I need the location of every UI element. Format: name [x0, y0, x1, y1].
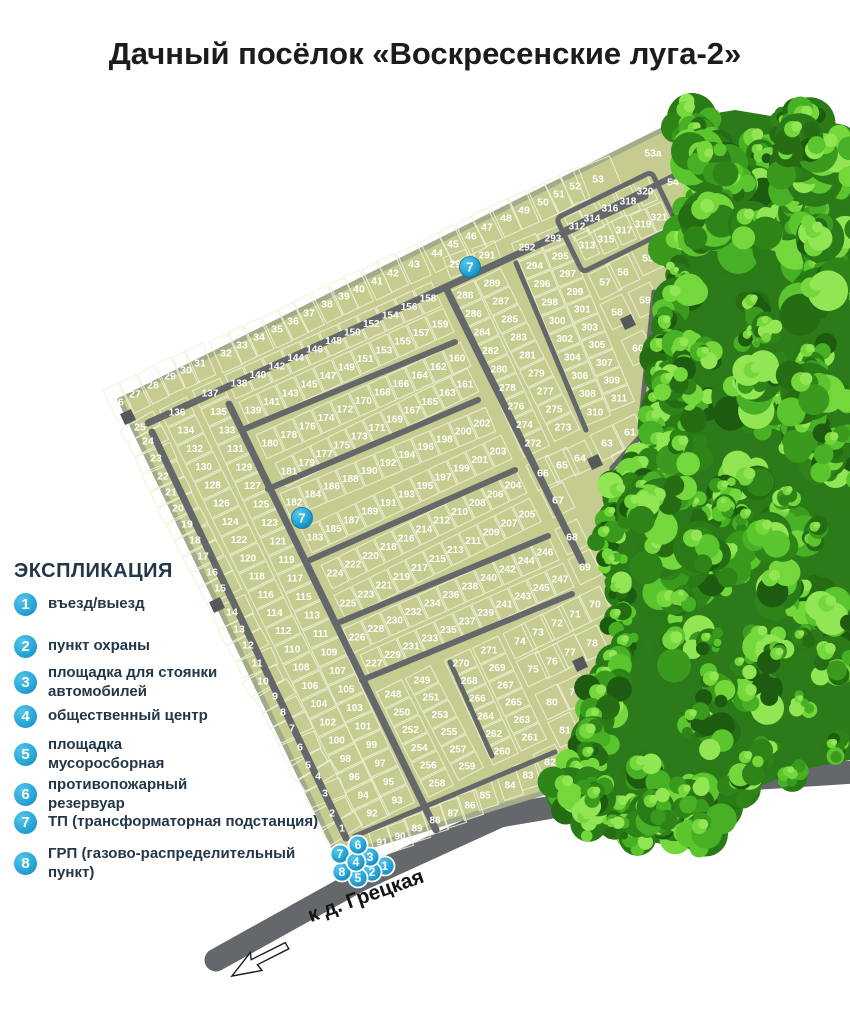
plot-label: 264 — [477, 711, 494, 722]
plot-label: 294 — [526, 261, 543, 272]
tree-leaf — [808, 136, 826, 154]
tree-leaf — [713, 638, 721, 646]
plot-label: 148 — [325, 336, 342, 347]
plot-label: 94 — [358, 790, 370, 801]
plot-label: 116 — [258, 590, 275, 601]
plot-label: 303 — [581, 322, 598, 333]
tree-leaf — [615, 582, 622, 589]
tree-leaf — [620, 832, 628, 840]
plot-label: 239 — [477, 608, 494, 619]
plot-label: 237 — [459, 617, 476, 628]
tree-leaf — [678, 436, 688, 446]
plot-label: 194 — [398, 450, 415, 461]
plot-label: 105 — [338, 685, 355, 696]
plot-label: 222 — [344, 560, 361, 571]
cluster-marker-label: 4 — [353, 855, 360, 869]
plot-label: 223 — [358, 590, 375, 601]
plot-label: 174 — [318, 413, 335, 424]
plot-label: 125 — [253, 500, 270, 511]
plot-label: 126 — [213, 499, 230, 510]
plot-label: 6 — [297, 742, 303, 754]
tree-leaf — [650, 809, 666, 825]
plot-label: 208 — [469, 498, 486, 509]
plot-label: 235 — [440, 625, 457, 636]
plot-label: 247 — [552, 575, 569, 586]
plot-label: 249 — [414, 676, 431, 687]
plot-label: 310 — [587, 408, 604, 419]
tree-leaf — [636, 756, 646, 766]
plot-label: 46 — [465, 231, 477, 243]
tree-leaf — [738, 657, 744, 663]
plot-label: 317 — [616, 226, 633, 237]
plot-label: 150 — [344, 328, 361, 339]
plot-label: 2 — [329, 808, 335, 820]
plot-label: 135 — [210, 407, 227, 418]
plot-label: 161 — [457, 380, 474, 391]
plot-label: 21 — [165, 487, 177, 499]
plot-label: 69 — [579, 562, 591, 574]
plot-label: 157 — [413, 328, 430, 339]
plot-label: 98 — [340, 754, 352, 765]
tree-leaf — [691, 719, 703, 731]
legend-label-2: пункт охраны — [48, 637, 150, 656]
plot-label: 122 — [231, 535, 248, 546]
tree-leaf — [676, 452, 700, 476]
plot-label: 240 — [480, 573, 497, 584]
plot-label: 189 — [362, 507, 379, 518]
plot-label: 175 — [333, 440, 350, 451]
tree-leaf — [762, 519, 772, 529]
tree-leaf — [744, 209, 755, 220]
plot-label: 13 — [233, 624, 245, 636]
plot-label: 233 — [421, 633, 438, 644]
tree-leaf — [752, 756, 763, 767]
plot-label: 155 — [394, 337, 411, 348]
plot-label: 43 — [408, 259, 420, 271]
tree-leaf — [680, 406, 707, 433]
plot-label: 130 — [195, 462, 212, 473]
plot-label: 214 — [416, 525, 433, 536]
plot-label: 279 — [528, 369, 545, 380]
plot-label: 67 — [552, 495, 564, 507]
plot-label: 304 — [564, 353, 581, 364]
plot-label: 74 — [514, 636, 526, 648]
legend-marker-8: 8 — [14, 852, 37, 875]
tree-leaf — [670, 631, 682, 643]
plot-label: 308 — [579, 389, 596, 400]
legend-item-security: 2 пункт охраны — [14, 635, 150, 658]
plot-label: 318 — [620, 197, 637, 208]
tp-marker-label: 7 — [466, 260, 473, 275]
plot-label: 215 — [429, 554, 446, 565]
tree-leaf — [593, 787, 601, 795]
plot-label: 80 — [546, 697, 558, 709]
tree-leaf — [587, 747, 594, 754]
tree-leaf — [699, 739, 720, 760]
tree-leaf — [718, 568, 738, 588]
plot-label: 41 — [371, 276, 383, 288]
legend-item-tp: 7 ТП (трансформаторная подстанция) — [14, 811, 318, 834]
tree-leaf — [693, 779, 710, 796]
legend-label-4: общественный центр — [48, 707, 208, 726]
plot-label: 245 — [533, 583, 550, 594]
plot-label: 95 — [383, 777, 395, 788]
plot-label: 201 — [471, 455, 488, 466]
plot-label: 34 — [253, 332, 265, 344]
plot-label: 115 — [295, 592, 312, 603]
plot-label: 219 — [393, 572, 410, 583]
tree-leaf — [814, 522, 820, 528]
tree-leaf — [758, 626, 768, 636]
plot-label: 81 — [559, 725, 571, 737]
plot-label: 207 — [501, 518, 518, 529]
plot-label: 153 — [376, 345, 393, 356]
cluster-marker-label: 6 — [355, 838, 362, 852]
plot-label: 140 — [250, 370, 267, 381]
plot-label: 238 — [461, 582, 478, 593]
plot-label: 1 — [339, 823, 345, 835]
plot-label: 4 — [315, 771, 321, 783]
plot-label: 77 — [564, 647, 576, 659]
tree-leaf — [721, 498, 726, 503]
plot-label: 123 — [261, 518, 278, 529]
plot-label: 11 — [251, 658, 262, 670]
plot-label: 293 — [545, 234, 562, 245]
tree-leaf — [744, 751, 752, 759]
tree-leaf — [622, 635, 629, 642]
tree-leaf — [684, 101, 695, 112]
tree-leaf — [679, 591, 684, 596]
tree-leaf — [742, 665, 756, 679]
tree-leaf — [616, 483, 625, 492]
tree-leaf — [722, 480, 729, 487]
plot-label: 252 — [402, 725, 419, 736]
tree-leaf — [812, 222, 823, 233]
plot-label: 295 — [552, 251, 569, 262]
plot-label: 286 — [465, 309, 482, 320]
plot-label: 124 — [222, 517, 239, 528]
plot-label: 306 — [572, 371, 589, 382]
plot-label: 63 — [601, 438, 613, 450]
plot-label: 321 — [651, 213, 668, 224]
plot-label: 44 — [431, 248, 443, 260]
cluster-marker-label: 5 — [355, 871, 362, 885]
tree-leaf — [698, 819, 708, 829]
plot-label: 48 — [500, 213, 512, 225]
plot-label: 38 — [321, 299, 333, 311]
plot-label: 187 — [343, 515, 360, 526]
plot-label: 265 — [505, 698, 522, 709]
plot-label: 244 — [518, 556, 535, 567]
plot-label: 251 — [423, 693, 440, 704]
plot-label: 258 — [429, 779, 446, 790]
tree-leaf — [631, 495, 640, 504]
tree-leaf — [827, 660, 847, 680]
tree-leaf — [562, 775, 573, 786]
plot-label: 104 — [310, 699, 327, 710]
tree-leaf — [746, 331, 751, 336]
plot-label: 284 — [474, 328, 491, 339]
plot-label: 159 — [432, 320, 449, 331]
tree-leaf — [690, 709, 697, 716]
plot-label: 129 — [236, 463, 253, 474]
plot-label: 83 — [522, 771, 534, 782]
plot-label: 78 — [586, 638, 598, 650]
tree-leaf — [751, 128, 763, 140]
plot-label: 154 — [382, 311, 399, 322]
plot-label: 52 — [569, 181, 581, 193]
tree-leaf — [670, 285, 681, 296]
plot-label: 273 — [555, 423, 572, 434]
plot-label: 18 — [189, 535, 201, 547]
tree-leaf — [744, 509, 751, 516]
tree-leaf — [810, 278, 823, 291]
tree-leaf — [684, 226, 708, 250]
plot-label: 186 — [323, 482, 340, 493]
tree-leaf — [652, 410, 661, 419]
plot-label: 45 — [447, 239, 459, 251]
plot-label: 203 — [490, 447, 507, 458]
plot-label: 28 — [147, 380, 159, 392]
tree-leaf — [694, 554, 712, 572]
plot-label: 26 — [112, 397, 124, 409]
tree-leaf — [603, 526, 610, 533]
plot-label: 319 — [635, 220, 652, 231]
plot-label: 12 — [242, 640, 254, 652]
plot-label: 58 — [611, 307, 623, 319]
legend-label-7: ТП (трансформаторная подстанция) — [48, 813, 318, 832]
plot-label: 144 — [287, 353, 304, 364]
plot-label: 313 — [579, 241, 596, 252]
plot-label: 191 — [380, 498, 397, 509]
tree-leaf — [596, 684, 606, 694]
plot-label: 7 — [289, 723, 295, 735]
tp-marker: 7 — [292, 508, 313, 529]
cluster-marker: 4 — [347, 853, 366, 872]
plot-label: 57 — [599, 277, 611, 289]
plot-label: 160 — [449, 354, 466, 365]
plot-label: 163 — [439, 388, 456, 399]
plot-label: 73 — [532, 627, 544, 639]
plot-label: 173 — [351, 432, 368, 443]
tp-marker-label: 7 — [298, 511, 305, 526]
legend-marker-2: 2 — [14, 635, 37, 658]
plot-label: 259 — [459, 762, 476, 773]
plot-label: 272 — [525, 439, 542, 450]
plot-label: 210 — [451, 507, 468, 518]
plot-label: 248 — [385, 690, 402, 701]
plot-label: 134 — [178, 426, 195, 437]
tree-leaf — [751, 362, 761, 372]
plot-label: 36 — [287, 316, 299, 328]
tree-leaf — [760, 688, 778, 706]
plot-label: 92 — [366, 809, 378, 820]
plot-label: 196 — [417, 442, 434, 453]
plot-label: 99 — [366, 740, 378, 751]
plot-label: 37 — [303, 308, 315, 320]
plot-label: 156 — [401, 302, 418, 313]
plot-label: 90 — [394, 832, 406, 843]
plot-label: 64 — [574, 453, 586, 465]
plot-label: 47 — [481, 222, 493, 234]
plot-label: 10 — [257, 676, 269, 688]
plot-label: 181 — [281, 467, 298, 478]
plot-label: 198 — [436, 434, 453, 445]
tree-leaf — [814, 444, 834, 464]
plot-label: 113 — [304, 611, 321, 622]
plot-label: 242 — [499, 565, 516, 576]
cluster-marker-label: 3 — [367, 850, 374, 864]
plot-label: 68 — [566, 532, 578, 544]
plot-label: 291 — [479, 251, 496, 262]
plot-label: 285 — [501, 315, 518, 326]
plot-label: 202 — [474, 419, 491, 430]
plot-label: 292 — [519, 243, 536, 254]
plot-label: 96 — [349, 772, 361, 783]
plot-label: 72 — [551, 618, 563, 630]
tree-leaf — [806, 344, 814, 352]
plot-label: 278 — [499, 383, 516, 394]
plot-label: 234 — [424, 599, 441, 610]
plot-label: 269 — [489, 663, 506, 674]
plot-label: 131 — [227, 444, 244, 455]
plot-label: 49 — [518, 205, 530, 217]
tree-leaf — [712, 627, 723, 638]
plot-label: 137 — [202, 389, 219, 400]
plot-label: 132 — [186, 444, 203, 455]
plot-label: 226 — [349, 633, 366, 644]
plot-label: 283 — [510, 333, 527, 344]
plot-label: 281 — [519, 351, 536, 362]
plot-label: 51 — [553, 189, 565, 201]
plot-label: 217 — [411, 563, 428, 574]
plot-label: 66 — [537, 468, 549, 480]
plot-label: 168 — [374, 388, 391, 399]
plot-label: 14 — [226, 607, 238, 619]
plot-label: 255 — [441, 727, 458, 738]
plot-label: 172 — [336, 405, 353, 416]
tree-leaf — [604, 827, 616, 839]
legend: ЭКСПЛИКАЦИЯ 1 въезд/выезд 2 пункт охраны… — [14, 560, 344, 583]
plot-label: 142 — [268, 362, 285, 373]
tree-leaf — [831, 739, 837, 745]
plot-label: 9 — [272, 691, 278, 703]
tree-leaf — [830, 751, 842, 763]
plot-label: 218 — [380, 542, 397, 553]
tree-leaf — [799, 630, 805, 636]
plot-label: 42 — [387, 268, 399, 280]
plot-label: 86 — [464, 801, 476, 812]
plot-label: 305 — [589, 340, 606, 351]
legend-item-reservoir: 6 противопожарный резервуар — [14, 776, 187, 814]
tree-leaf — [798, 695, 803, 700]
plot-label: 178 — [280, 430, 297, 441]
plot-label: 147 — [319, 371, 336, 382]
plot-label: 229 — [384, 650, 401, 661]
tree-leaf — [762, 317, 769, 324]
plot-label: 170 — [355, 396, 372, 407]
tree-leaf — [824, 133, 838, 147]
plot-label: 195 — [416, 481, 433, 492]
plot-label: 193 — [398, 490, 415, 501]
plot-label: 106 — [302, 681, 319, 692]
plot-label: 206 — [487, 489, 504, 500]
plot-label: 231 — [403, 642, 420, 653]
tree-leaf — [682, 727, 693, 738]
plot-label: 190 — [361, 466, 378, 477]
plot-label: 197 — [435, 472, 452, 483]
tp-marker: 7 — [460, 257, 481, 278]
plot-label: 301 — [574, 305, 591, 316]
plot-label: 171 — [369, 423, 386, 434]
plot-label: 288 — [457, 291, 474, 302]
plot-label: 103 — [346, 703, 363, 714]
plot-label: 23 — [150, 453, 162, 465]
tree-leaf — [745, 684, 756, 695]
plot-label: 87 — [447, 809, 459, 820]
plot-label: 298 — [541, 298, 558, 309]
legend-label-3: площадка для стоянки автомобилей — [48, 664, 217, 702]
plot-label: 59 — [639, 295, 651, 307]
tree-leaf — [693, 435, 707, 449]
plot-label: 88 — [429, 816, 441, 827]
plot-label: 212 — [433, 516, 450, 527]
tree-leaf — [611, 818, 617, 824]
plot-label: 167 — [404, 406, 421, 417]
plot-label: 213 — [447, 545, 464, 556]
plot-label: 3 — [322, 788, 328, 800]
plot-label: 220 — [362, 551, 379, 562]
plot-label: 228 — [367, 624, 384, 635]
tree-leaf — [715, 695, 728, 708]
legend-marker-3: 3 — [14, 671, 37, 694]
tree-leaf — [654, 384, 671, 401]
plot-label: 101 — [355, 722, 372, 733]
plot-label: 320 — [637, 187, 654, 198]
plot-label: 289 — [484, 279, 501, 290]
plot-label: 204 — [505, 481, 522, 492]
plot-label: 256 — [420, 761, 437, 772]
tree-leaf — [700, 199, 714, 213]
tree-leaf — [702, 347, 710, 355]
plot-label: 100 — [328, 736, 345, 747]
tree-leaf — [674, 267, 679, 272]
tree-leaf — [665, 373, 672, 380]
plot-label: 282 — [482, 346, 499, 357]
plot-label: 158 — [420, 294, 437, 305]
plot-label: 35 — [271, 324, 283, 336]
plot-label: 162 — [430, 362, 447, 373]
plot-label: 53a — [644, 148, 662, 160]
plot-label: 299 — [567, 287, 584, 298]
tree-leaf — [713, 143, 726, 156]
legend-item-grp: 8 ГРП (газово-распределительный пункт) — [14, 845, 344, 883]
tree-leaf — [744, 468, 756, 480]
tree-leaf — [727, 477, 736, 486]
legend-label-6: противопожарный резервуар — [48, 776, 187, 814]
plot-label: 127 — [244, 481, 261, 492]
cluster-marker-label: 1 — [382, 859, 389, 873]
legend-item-center: 4 общественный центр — [14, 705, 208, 728]
plot-label: 145 — [301, 380, 318, 391]
plot-label: 70 — [589, 599, 601, 611]
tree-leaf — [591, 708, 599, 716]
tree-leaf — [691, 530, 702, 541]
plot-label: 250 — [393, 707, 410, 718]
tree-leaf — [608, 555, 614, 561]
tree-leaf — [750, 294, 758, 302]
plot-label: 277 — [537, 387, 554, 398]
